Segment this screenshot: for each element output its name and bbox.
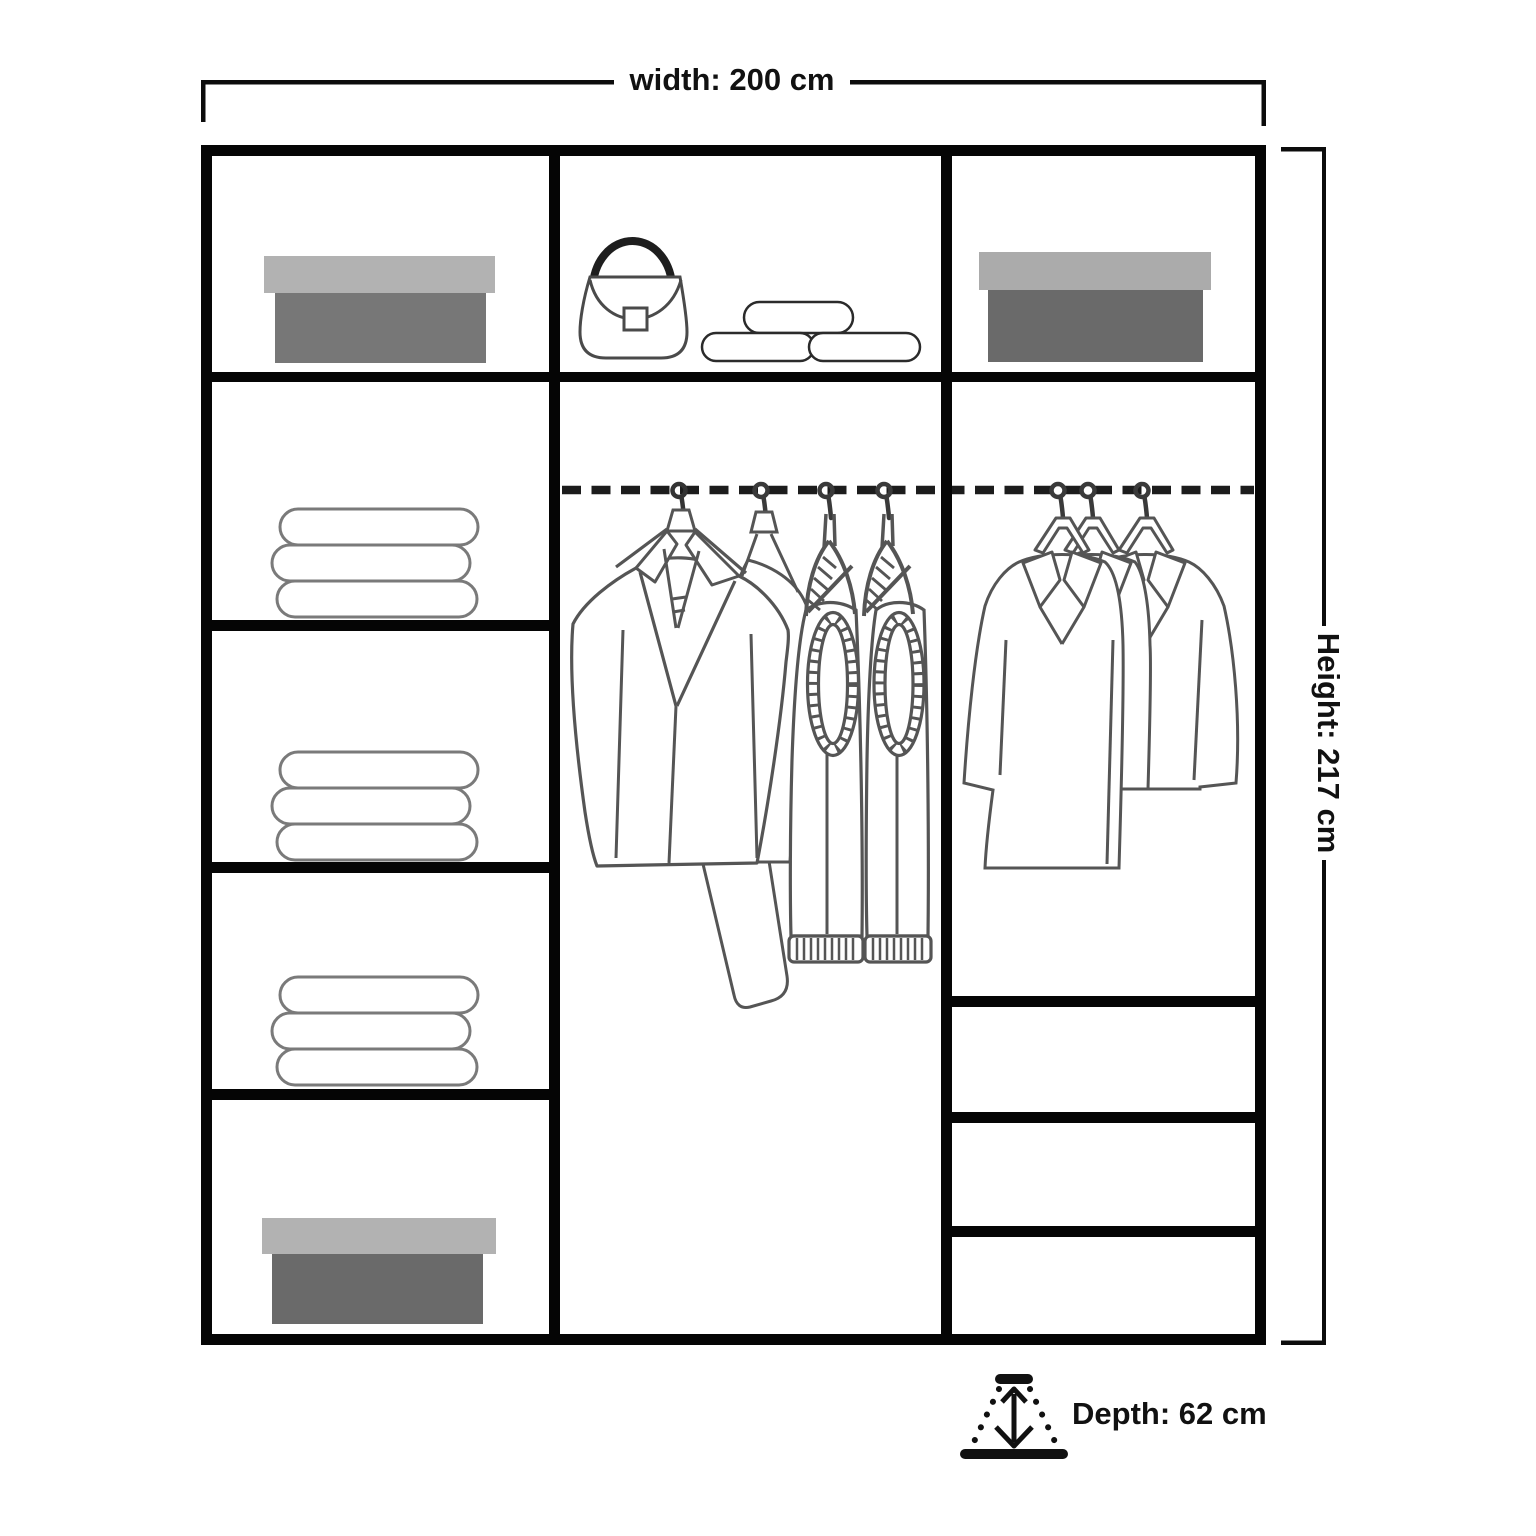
svg-text:Height: 217 cm: Height: 217 cm — [1311, 633, 1346, 854]
svg-text:Depth: 62 cm: Depth: 62 cm — [1072, 1396, 1267, 1431]
svg-text:width: 200 cm: width: 200 cm — [629, 62, 835, 97]
